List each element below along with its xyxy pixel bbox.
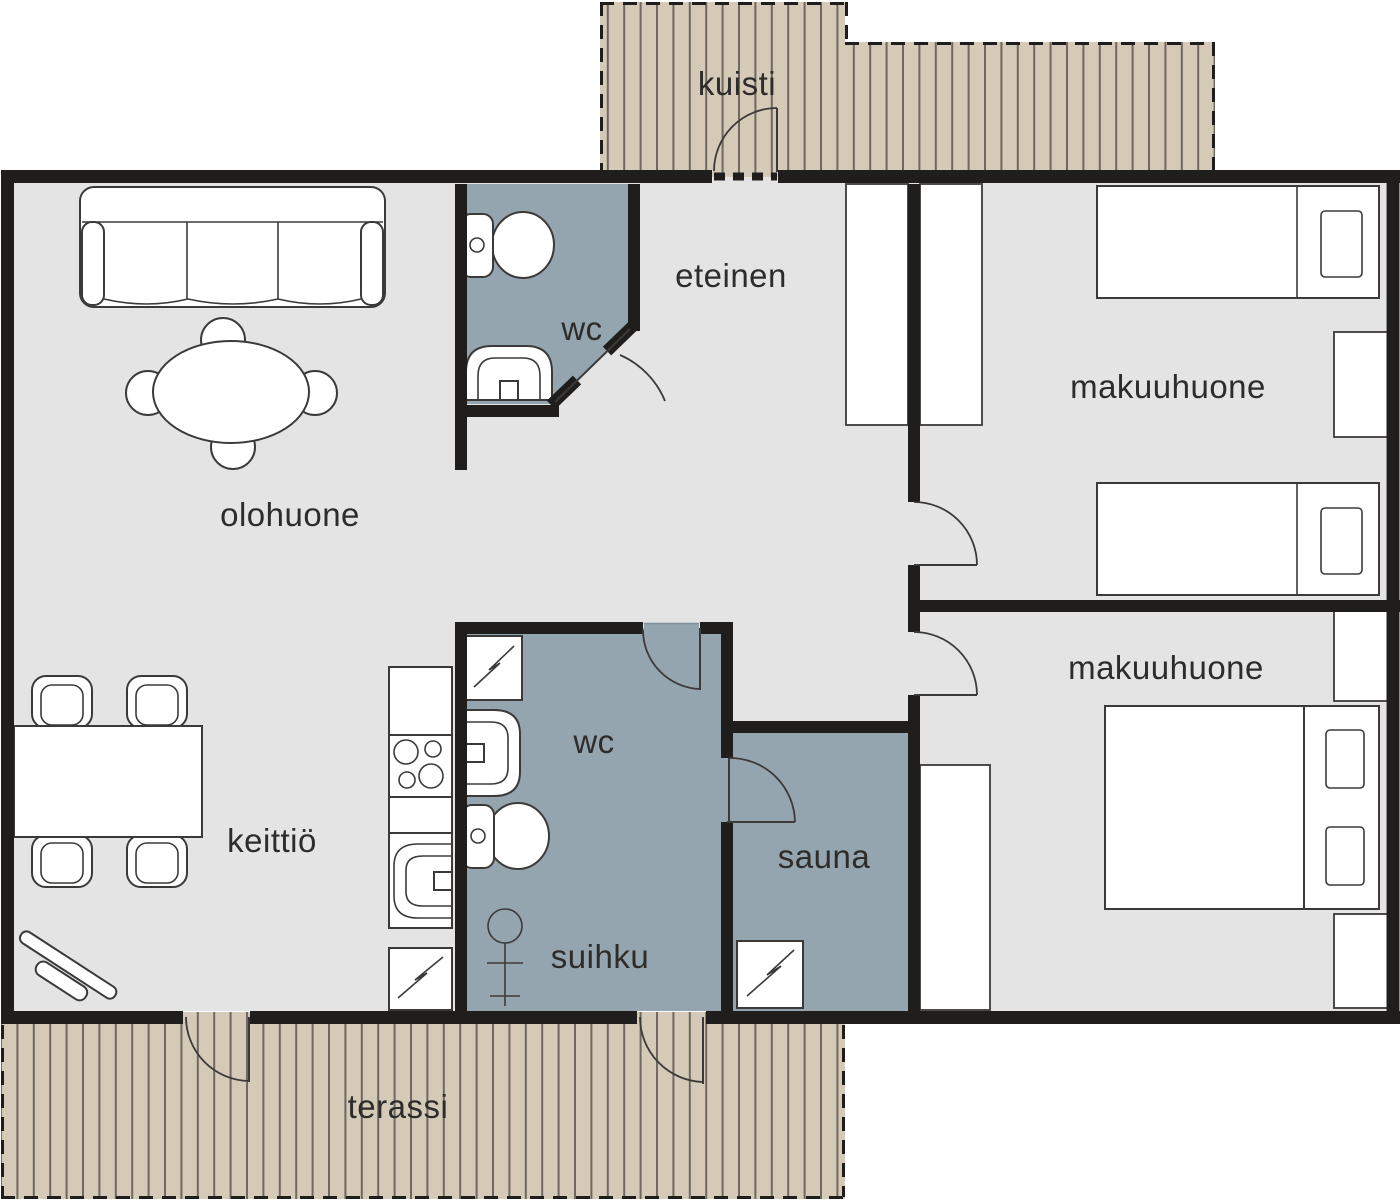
room-label-wc-bottom: wc (572, 723, 614, 760)
floor-plan-page: kuisti eteinen wc olohuone makuuhuone ma… (0, 0, 1400, 1204)
room-label-suihku: suihku (551, 938, 649, 975)
room-label-keittio: keittiö (227, 822, 317, 859)
window-icon (1334, 914, 1388, 1008)
sauna-heater-icon (737, 941, 803, 1008)
single-bed-icon (1097, 186, 1379, 298)
cabinet-icon (389, 667, 452, 735)
wardrobe-icon (920, 765, 990, 1010)
room-label-sauna: sauna (778, 838, 871, 875)
wardrobe-icon (920, 184, 982, 425)
deck-right (845, 42, 1215, 177)
wardrobe-icon (846, 184, 908, 425)
window-icon (1334, 332, 1388, 437)
room-label-makuuhuone-bottom: makuuhuone (1068, 649, 1264, 686)
kitchen-counter-icon (389, 667, 452, 1010)
sofa-icon (80, 187, 385, 307)
bathroom-door-threshold-fill (644, 623, 699, 634)
dining-table-icon (14, 726, 202, 837)
appliance-icon (389, 948, 452, 1010)
room-label-wc-top: wc (560, 310, 602, 347)
room-label-makuuhuone-top: makuuhuone (1070, 368, 1266, 405)
room-label-terassi: terassi (348, 1088, 449, 1125)
floor-plan-svg: kuisti eteinen wc olohuone makuuhuone ma… (0, 0, 1400, 1204)
single-bed-icon (1097, 483, 1379, 595)
toilet-icon (462, 803, 549, 869)
washing-machine-icon (466, 636, 522, 700)
sauna-door-threshold-fill (721, 758, 733, 822)
counter-icon (389, 797, 452, 833)
double-bed-icon (1105, 706, 1379, 909)
sink-icon (466, 710, 520, 796)
window-icon (1334, 609, 1388, 701)
kitchen-sink-icon (389, 833, 452, 928)
stove-icon (389, 735, 452, 797)
sink-icon (466, 346, 552, 400)
room-label-olohuone: olohuone (220, 496, 360, 533)
deck-surface (845, 42, 1215, 177)
room-label-kuisti: kuisti (698, 65, 776, 102)
room-label-eteinen: eteinen (675, 257, 787, 294)
toilet-icon (461, 212, 554, 278)
